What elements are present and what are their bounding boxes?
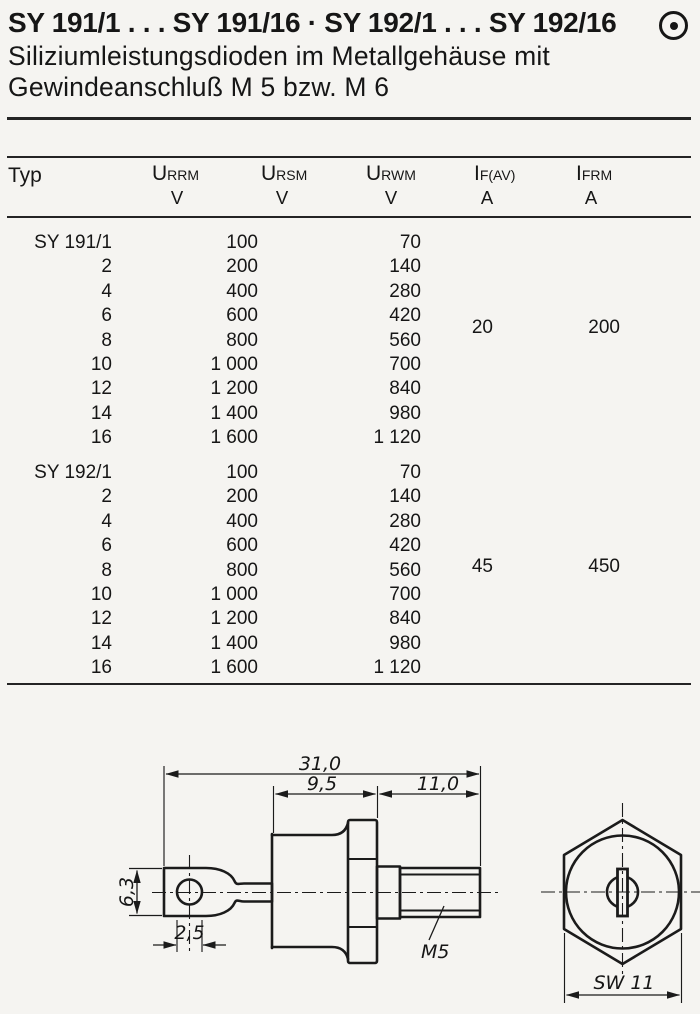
column-header-urwm: URWM: [366, 162, 416, 186]
cell-typ: 12: [8, 377, 112, 401]
cell-urrm: 1 400: [112, 632, 258, 656]
cell-urrm: 400: [112, 280, 258, 304]
table-row: 2 200 140: [8, 255, 624, 279]
case-bottom-edge: [272, 947, 348, 959]
table-group-rows: SY 191/1 100 70 2 200 140 4 400 280 6 60…: [8, 231, 624, 451]
column-unit-ifrm: A: [585, 187, 597, 209]
column-unit-urrm: V: [171, 187, 183, 209]
column-header-ursm: URSM: [261, 162, 307, 186]
cell-urrm: 100: [112, 461, 258, 485]
column-header-typ: Typ: [8, 164, 42, 188]
cell-urrm: 100: [112, 231, 258, 255]
cell-urrm: 400: [112, 510, 258, 534]
table-group-rows: SY 192/1 100 70 2 200 140 4 400 280 6 60…: [8, 461, 624, 681]
table-group-sy192: SY 192/1 100 70 2 200 140 4 400 280 6 60…: [8, 461, 624, 681]
dim-tab-width: 6,3: [116, 877, 138, 907]
column-header-ifav: IF(AV): [474, 162, 515, 186]
table-row: 16 1 600 1 120: [8, 656, 624, 680]
cell-urrm: 1 200: [112, 377, 258, 401]
end-view-drawing: SW 11: [541, 803, 700, 1003]
cell-urrm: 1 000: [112, 353, 258, 377]
table-row: 4 400 280: [8, 510, 624, 534]
dim-overall-length: 31,0: [299, 753, 341, 775]
cell-typ: 16: [8, 656, 112, 680]
cell-urwm: 140: [258, 485, 421, 509]
cell-urwm: 560: [258, 329, 421, 353]
cell-urwm: 420: [258, 304, 421, 328]
cell-urwm: 280: [258, 510, 421, 534]
subtitle-line-2: Gewindeanschluß M 5 bzw. M 6: [8, 72, 550, 103]
cell-urwm: 700: [258, 583, 421, 607]
table-row: 12 1 200 840: [8, 377, 624, 401]
circled-dot-icon: [659, 11, 688, 40]
cell-typ: 10: [8, 583, 112, 607]
column-header-urrm: URRM: [152, 162, 199, 186]
cell-urwm: 140: [258, 255, 421, 279]
cell-typ: 14: [8, 402, 112, 426]
table-row: 2 200 140: [8, 485, 624, 509]
dim-hole-diameter: 2,5: [174, 922, 204, 944]
rule-under-header: [7, 216, 691, 218]
cell-urwm: 560: [258, 559, 421, 583]
technical-drawing: 31,0 9,5 11,0 6,3 2,5 M5 SW 11: [0, 735, 700, 1014]
table-row: SY 191/1 100 70: [8, 231, 624, 255]
cell-typ: 10: [8, 353, 112, 377]
table-row: 8 800 560: [8, 559, 624, 583]
cell-typ: 8: [8, 329, 112, 353]
cell-urrm: 1 400: [112, 402, 258, 426]
cell-urwm: 840: [258, 607, 421, 631]
subtitle-line-1: Siliziumleistungsdioden im Metallgehäuse…: [8, 41, 550, 72]
page-subtitle: Siliziumleistungsdioden im Metallgehäuse…: [8, 41, 550, 103]
table-row: 10 1 000 700: [8, 583, 624, 607]
cell-urwm: 70: [258, 461, 421, 485]
cell-urwm: 980: [258, 402, 421, 426]
cell-typ: 12: [8, 607, 112, 631]
table-row: 16 1 600 1 120: [8, 426, 624, 450]
page-title: SY 191/1 . . . SY 191/16 · SY 192/1 . . …: [8, 7, 616, 39]
cell-urrm: 200: [112, 485, 258, 509]
table-row: 6 600 420: [8, 304, 624, 328]
dim-case-length: 9,5: [307, 773, 337, 795]
dim-stud-length: 11,0: [417, 773, 459, 795]
table-row: 8 800 560: [8, 329, 624, 353]
group-value-ifrm: 450: [540, 556, 620, 578]
table-row: 14 1 400 980: [8, 402, 624, 426]
cell-urwm: 70: [258, 231, 421, 255]
cell-urrm: 800: [112, 329, 258, 353]
cell-urwm: 1 120: [258, 426, 421, 450]
datasheet-page: SY 191/1 . . . SY 191/16 · SY 192/1 . . …: [0, 0, 700, 1014]
table-row: 14 1 400 980: [8, 632, 624, 656]
hex-flange: [348, 820, 377, 963]
cell-urwm: 1 120: [258, 656, 421, 680]
cell-typ: SY 191/1: [8, 231, 112, 255]
cell-typ: 4: [8, 510, 112, 534]
cell-typ: SY 192/1: [8, 461, 112, 485]
cell-urwm: 980: [258, 632, 421, 656]
cell-urwm: 840: [258, 377, 421, 401]
cell-typ: 2: [8, 255, 112, 279]
table-row: 4 400 280: [8, 280, 624, 304]
cell-typ: 8: [8, 559, 112, 583]
table-group-sy191: SY 191/1 100 70 2 200 140 4 400 280 6 60…: [8, 231, 624, 451]
cell-urwm: 700: [258, 353, 421, 377]
cell-typ: 4: [8, 280, 112, 304]
rule-table-top: [7, 156, 691, 158]
cell-urrm: 800: [112, 559, 258, 583]
cell-typ: 6: [8, 304, 112, 328]
cell-typ: 2: [8, 485, 112, 509]
cell-urrm: 1 200: [112, 607, 258, 631]
column-header-ifrm: IFRM: [576, 162, 612, 186]
group-value-ifrm: 200: [540, 317, 620, 339]
case-top-edge: [272, 823, 348, 835]
cell-urrm: 1 000: [112, 583, 258, 607]
group-value-ifav: 45: [433, 556, 493, 578]
cell-typ: 14: [8, 632, 112, 656]
cell-urwm: 420: [258, 534, 421, 558]
table-row: 6 600 420: [8, 534, 624, 558]
group-value-ifav: 20: [433, 317, 493, 339]
table-row: 12 1 200 840: [8, 607, 624, 631]
dim-wrench-size: SW 11: [593, 972, 654, 994]
cell-urrm: 600: [112, 534, 258, 558]
cell-urrm: 600: [112, 304, 258, 328]
rule-table-bottom: [7, 683, 691, 685]
table-row: 10 1 000 700: [8, 353, 624, 377]
side-view-drawing: 31,0 9,5 11,0 6,3 2,5 M5: [116, 753, 498, 963]
cell-urrm: 1 600: [112, 426, 258, 450]
cell-urrm: 200: [112, 255, 258, 279]
table-row: SY 192/1 100 70: [8, 461, 624, 485]
cell-typ: 16: [8, 426, 112, 450]
thread-label: M5: [421, 941, 449, 963]
rule-under-subtitle: [7, 117, 691, 120]
cell-urwm: 280: [258, 280, 421, 304]
column-unit-urwm: V: [385, 187, 397, 209]
cell-urrm: 1 600: [112, 656, 258, 680]
column-unit-ursm: V: [276, 187, 288, 209]
cell-typ: 6: [8, 534, 112, 558]
circled-dot-center: [670, 22, 678, 30]
column-unit-ifav: A: [481, 187, 493, 209]
